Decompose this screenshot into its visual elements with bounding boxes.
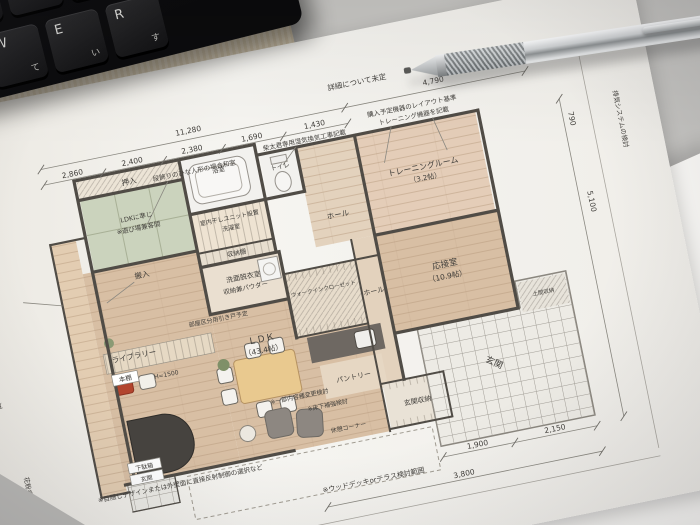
key-e[interactable]: Eい (44, 8, 109, 73)
dim-1690: 1,690 (240, 131, 263, 144)
keycap-kana: す (150, 30, 162, 45)
dim-790: 790 (566, 111, 578, 127)
pencil-lead-tip (404, 67, 412, 74)
dim-total: 11,280 (174, 124, 202, 138)
washing-machine (257, 256, 281, 282)
keycap-kana: い (90, 45, 102, 60)
dim-5100: 5,100 (585, 190, 598, 213)
sofa-1 (264, 407, 295, 440)
dim-3800: 3,800 (453, 467, 476, 480)
pencil-tip-cone (409, 55, 438, 81)
key-r[interactable]: Rす (104, 0, 169, 58)
keycap-main: R (113, 7, 125, 24)
room-floors (39, 89, 600, 525)
keycap-kana: あ (44, 0, 56, 3)
keycap-main: W (0, 36, 9, 54)
note-details: 詳細について未定 (326, 71, 387, 93)
key-w[interactable]: Wて (0, 23, 49, 88)
key-4[interactable]: 4う (59, 0, 124, 2)
dim-1430: 1,430 (303, 118, 326, 131)
note-cut-etsuran: 閲覧 (0, 401, 3, 413)
keycap-kana: て (29, 60, 41, 75)
key-2[interactable]: 2ふ (0, 0, 4, 32)
key-3[interactable]: 3あ (0, 0, 64, 17)
keycap-main: E (53, 22, 65, 39)
photo-scene: 11,280 4,790 2,860 2,400 2,380 1,690 1,4… (0, 0, 700, 525)
pencil-clip (642, 5, 700, 34)
note-right-margin: 排気システムの検討 (611, 89, 632, 148)
